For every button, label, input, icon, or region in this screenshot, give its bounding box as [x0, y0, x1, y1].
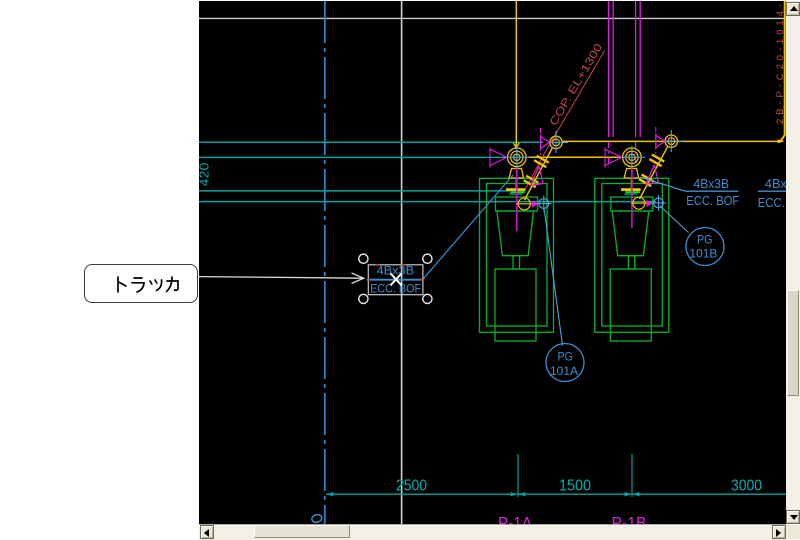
svg-text:P-1B: P-1B	[612, 514, 647, 525]
svg-text:4Bx3B: 4Bx3B	[694, 177, 730, 191]
svg-text:3000: 3000	[731, 478, 762, 495]
svg-text:P-1A: P-1A	[498, 514, 533, 525]
svg-text:420: 420	[199, 163, 212, 187]
svg-text:101B: 101B	[689, 249, 717, 261]
svg-text:4Bx3B: 4Bx3B	[377, 266, 415, 278]
svg-text:PG: PG	[558, 352, 574, 364]
svg-text:ECC. BOF: ECC. BOF	[686, 194, 739, 208]
svg-text:ECC.: ECC.	[758, 196, 785, 210]
svg-text:1500: 1500	[559, 478, 591, 495]
svg-text:ECC. BOF: ECC. BOF	[370, 284, 421, 296]
svg-text:101A: 101A	[550, 366, 578, 378]
svg-text:4Bx: 4Bx	[765, 177, 786, 191]
svg-text:PG: PG	[697, 235, 713, 247]
svg-text:2500: 2500	[396, 478, 427, 495]
